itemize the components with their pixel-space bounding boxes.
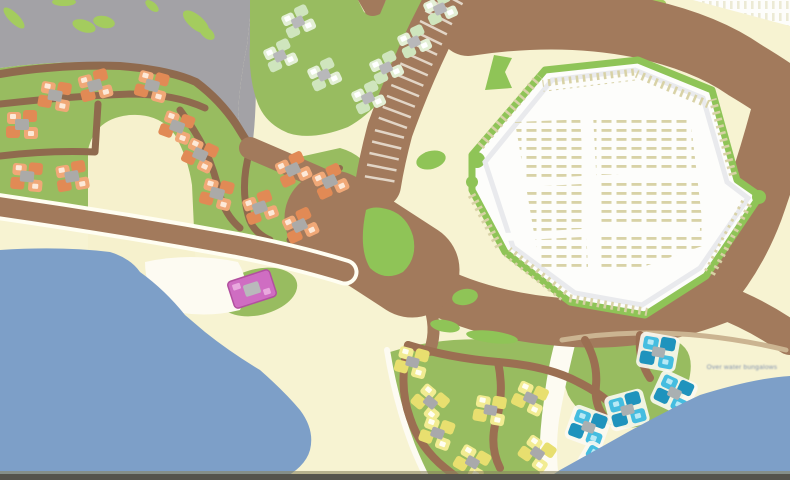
parking-stalls-central (515, 115, 705, 268)
resort-map[interactable]: Over water bungalows (0, 0, 790, 480)
beach-label: Over water bungalows (707, 364, 778, 371)
bottom-edge-bar (0, 474, 790, 480)
cyan-bungalows-house (635, 331, 681, 373)
bottom-edge-line (0, 471, 790, 474)
